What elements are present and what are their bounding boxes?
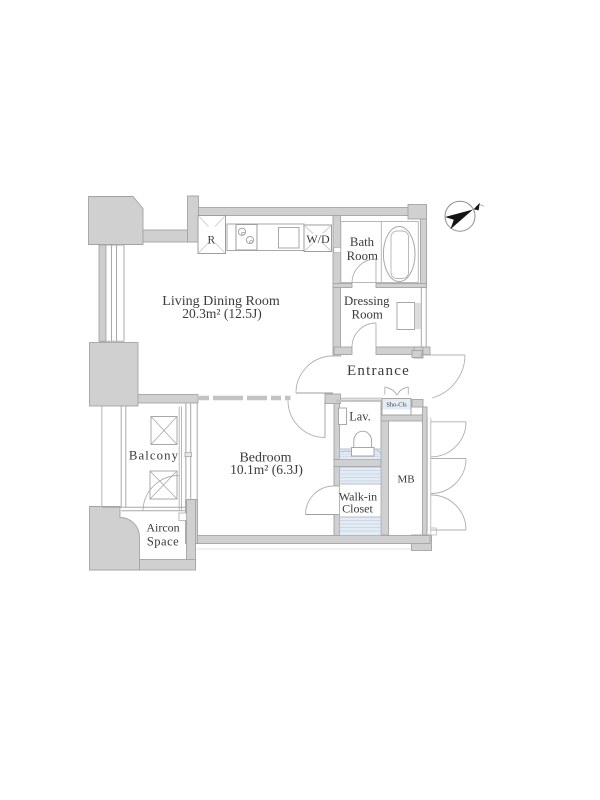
- svg-text:W/D: W/D: [306, 232, 330, 246]
- svg-text:Lav.: Lav.: [349, 410, 370, 424]
- svg-text:Sho-Cls: Sho-Cls: [386, 402, 407, 409]
- svg-text:Room: Room: [352, 308, 383, 322]
- svg-text:Room: Room: [347, 249, 378, 263]
- svg-text:10.1m² (6.3J): 10.1m² (6.3J): [230, 462, 303, 477]
- svg-text:Entrance: Entrance: [347, 363, 410, 379]
- svg-text:20.3m² (12.5J): 20.3m² (12.5J): [182, 306, 261, 321]
- svg-text:MB: MB: [397, 474, 414, 486]
- svg-text:Balcony: Balcony: [129, 449, 179, 463]
- svg-text:Bath: Bath: [350, 235, 375, 249]
- svg-text:Space: Space: [147, 535, 179, 549]
- svg-text:Closet: Closet: [342, 502, 373, 516]
- svg-text:Dressing: Dressing: [344, 294, 390, 308]
- svg-text:R: R: [207, 234, 215, 246]
- svg-text:Aircon: Aircon: [146, 521, 179, 535]
